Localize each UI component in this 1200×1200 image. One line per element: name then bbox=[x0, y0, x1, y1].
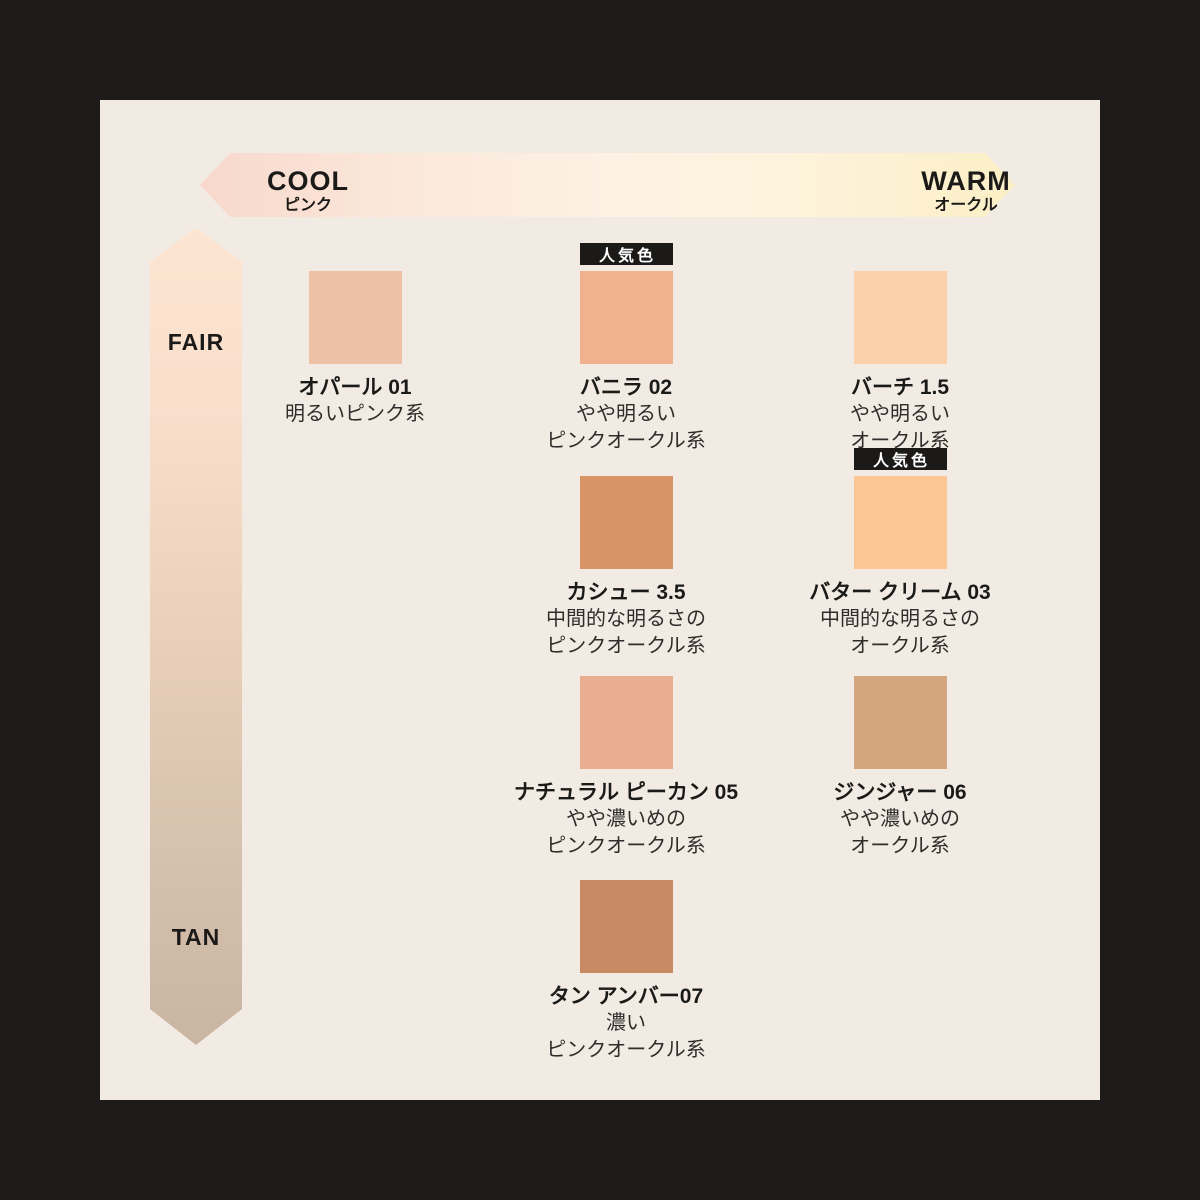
cool-axis-label: COOL ピンク bbox=[253, 168, 363, 214]
warm-label: WARM bbox=[911, 168, 1021, 194]
shade-name: バーチ 1.5 bbox=[851, 375, 949, 401]
shade-swatch bbox=[580, 880, 673, 973]
shade-ginger-06: ジンジャー 06 やや濃いめの オークル系 bbox=[740, 676, 1060, 860]
shade-swatch bbox=[854, 476, 947, 569]
shade-desc-line: 明るいピンク系 bbox=[285, 401, 425, 428]
shade-desc-line: やや明るい bbox=[576, 401, 676, 428]
shade-cashew-3-5: カシュー 3.5 中間的な明るさの ピンクオークル系 bbox=[466, 476, 786, 660]
shade-natural-pecan-05: ナチュラル ピーカン 05 やや濃いめの ピンクオークル系 bbox=[466, 676, 786, 860]
shade-birch-1-5: バーチ 1.5 やや明るい オークル系 bbox=[740, 271, 1060, 455]
cool-label: COOL bbox=[253, 168, 363, 194]
shade-swatch bbox=[580, 676, 673, 769]
shade-chart-panel: COOL ピンク WARM オークル FAIR TAN オパール 01 明るいピ… bbox=[100, 100, 1100, 1100]
shade-swatch bbox=[309, 271, 402, 364]
shade-desc-line: 中間的な明るさの bbox=[546, 606, 706, 633]
shade-name: ジンジャー 06 bbox=[833, 780, 966, 806]
shade-vanilla-02: 人気色 バニラ 02 やや明るい ピンクオークル系 bbox=[466, 271, 786, 455]
shade-swatch bbox=[580, 271, 673, 364]
shade-swatch bbox=[854, 271, 947, 364]
shade-desc-line: ピンクオークル系 bbox=[546, 633, 705, 660]
shade-desc-line: オークル系 bbox=[850, 833, 949, 860]
shade-name: オパール 01 bbox=[298, 375, 411, 401]
shade-desc-line: ピンクオークル系 bbox=[546, 428, 705, 455]
shade-swatch bbox=[854, 676, 947, 769]
warm-sublabel: オークル bbox=[911, 197, 1021, 214]
cool-sublabel: ピンク bbox=[253, 197, 363, 214]
shade-desc-line: やや濃いめの bbox=[566, 806, 686, 833]
shade-desc-line: オークル系 bbox=[850, 633, 949, 660]
shade-name: バニラ 02 bbox=[580, 375, 672, 401]
shade-desc-line: 中間的な明るさの bbox=[820, 606, 980, 633]
shade-name: カシュー 3.5 bbox=[566, 580, 685, 606]
shade-desc-line: やや明るい bbox=[850, 401, 950, 428]
shade-butter-cream-03: 人気色 バター クリーム 03 中間的な明るさの オークル系 bbox=[740, 476, 1060, 660]
screenshot-root: { "frame": { "bg": "#1c1b19", "panel_bg"… bbox=[0, 0, 1200, 1200]
shade-name: タン アンバー07 bbox=[549, 984, 703, 1010]
shade-desc-line: 濃い bbox=[606, 1010, 646, 1037]
shade-desc-line: ピンクオークル系 bbox=[546, 833, 705, 860]
shade-swatch bbox=[580, 476, 673, 569]
warm-axis-label: WARM オークル bbox=[911, 168, 1021, 214]
shade-desc-line: ピンクオークル系 bbox=[546, 1037, 705, 1064]
shade-desc-line: やや濃いめの bbox=[840, 806, 960, 833]
shade-name: バター クリーム 03 bbox=[809, 580, 990, 606]
popular-badge: 人気色 bbox=[854, 448, 947, 470]
tan-label: TAN bbox=[150, 924, 242, 951]
shade-tan-amber-07: タン アンバー07 濃い ピンクオークル系 bbox=[466, 880, 786, 1064]
shade-name: ナチュラル ピーカン 05 bbox=[514, 780, 738, 806]
popular-badge: 人気色 bbox=[580, 243, 673, 265]
